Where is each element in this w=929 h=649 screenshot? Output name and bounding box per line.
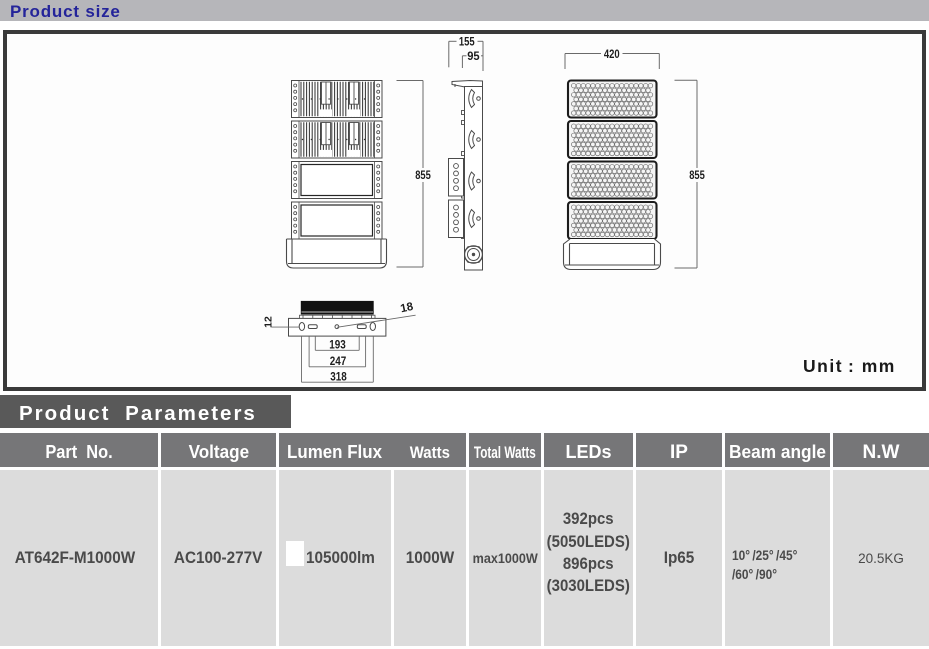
- svg-text:95: 95: [467, 51, 480, 63]
- svg-text:420: 420: [604, 49, 620, 61]
- svg-text:155: 155: [459, 37, 475, 49]
- svg-text:247: 247: [330, 354, 347, 368]
- svg-text:318: 318: [330, 370, 347, 384]
- svg-text:855: 855: [689, 170, 705, 182]
- svg-text:12: 12: [263, 316, 275, 328]
- svg-text:193: 193: [329, 338, 346, 352]
- svg-text:855: 855: [415, 170, 431, 182]
- svg-text:18: 18: [399, 301, 415, 316]
